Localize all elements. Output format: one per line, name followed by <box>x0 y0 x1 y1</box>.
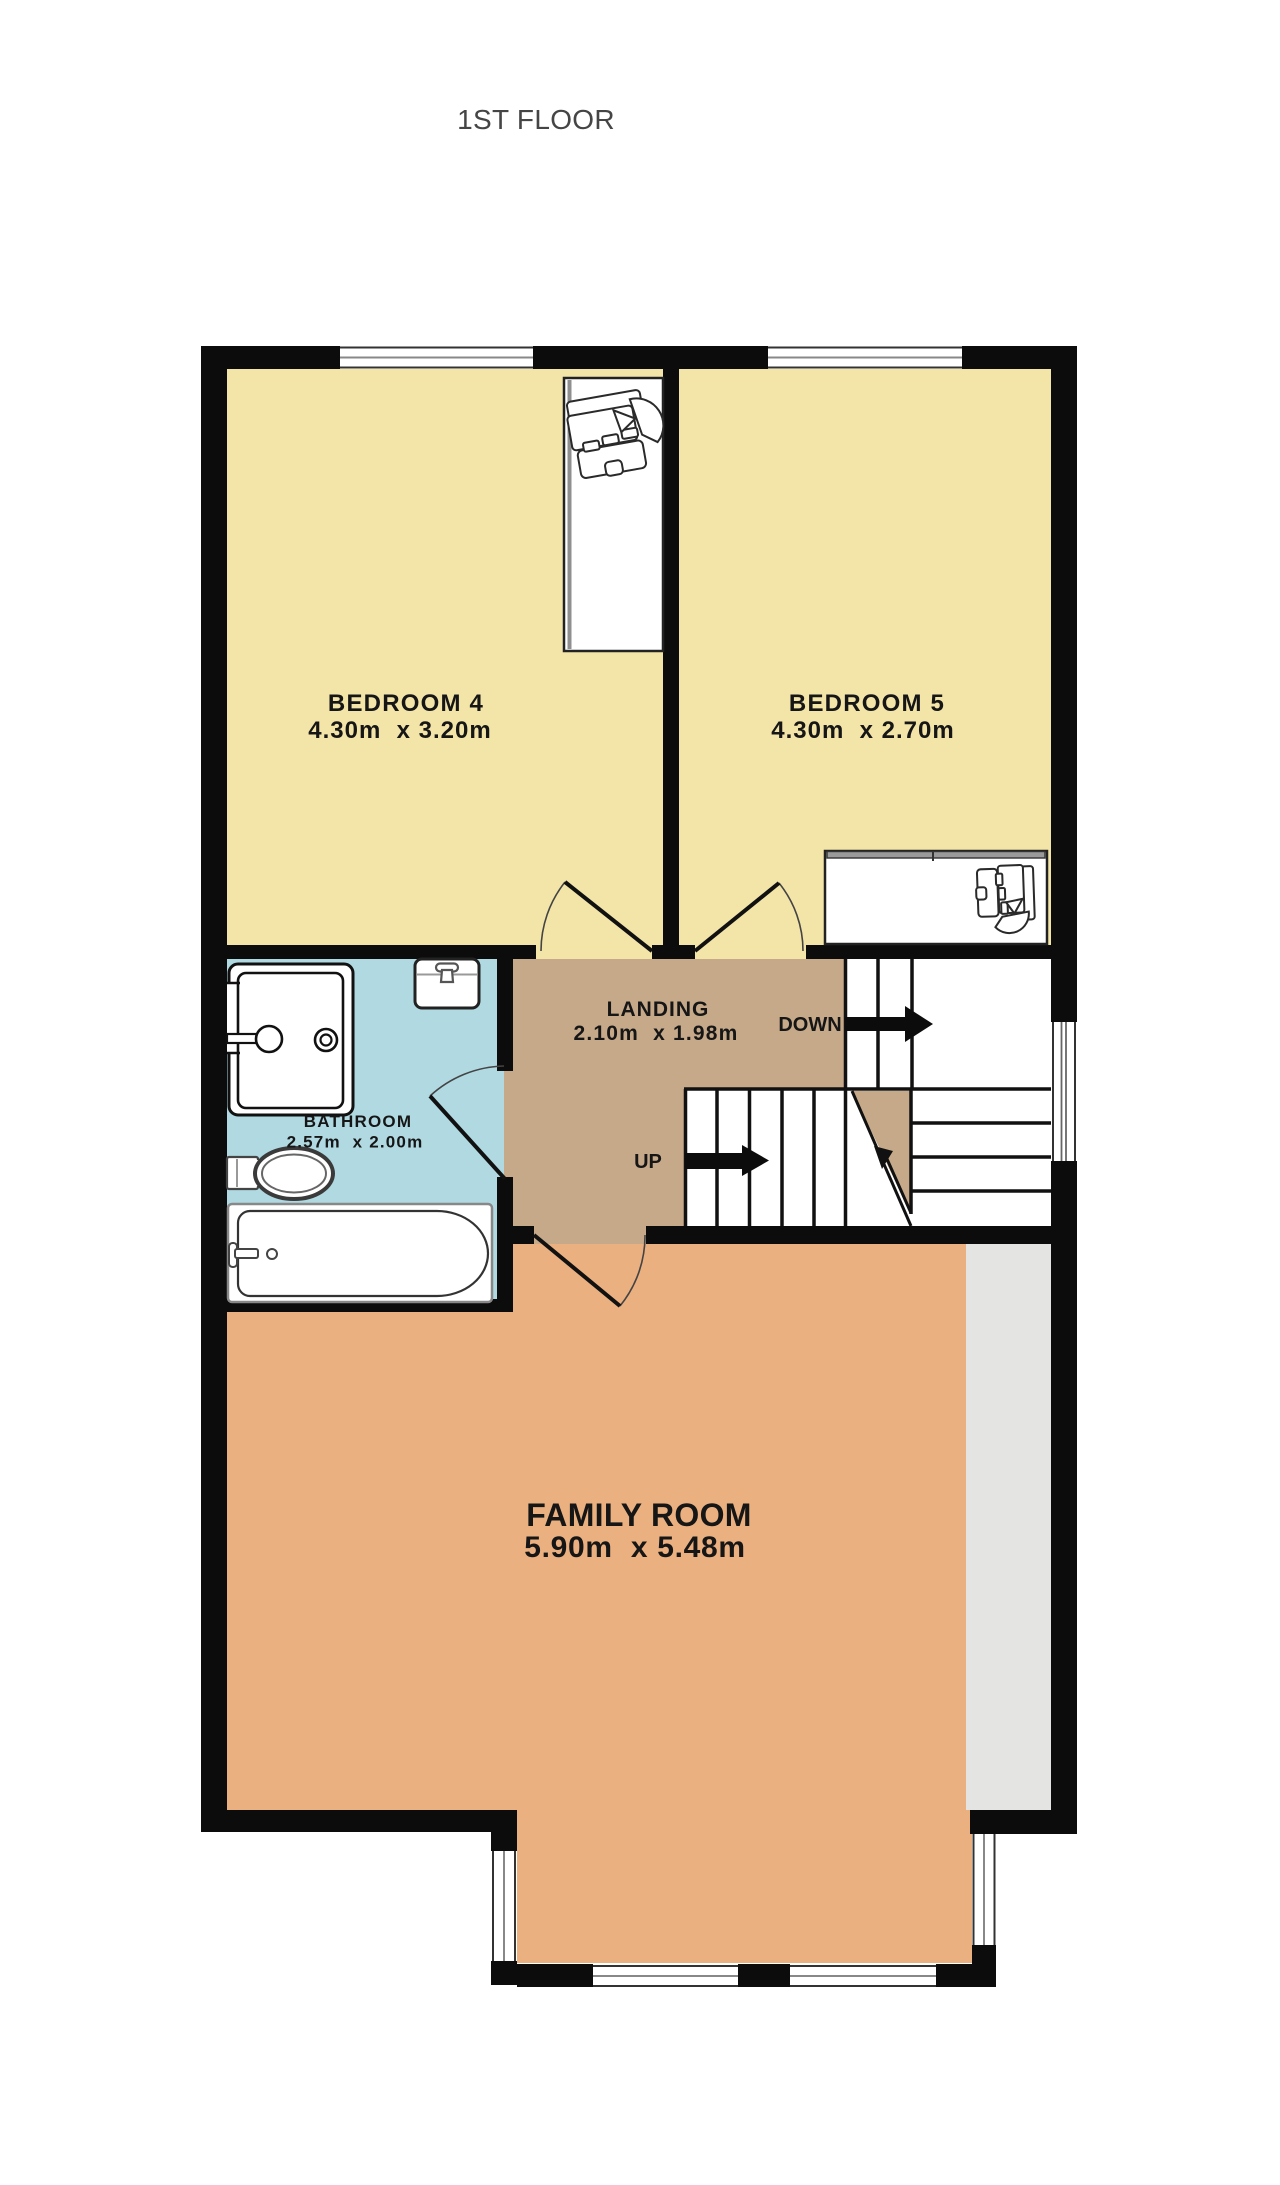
svg-text:LANDING: LANDING <box>607 998 710 1021</box>
svg-text:UP: UP <box>634 1151 662 1173</box>
svg-text:BATHROOM: BATHROOM <box>304 1112 412 1131</box>
svg-text:FAMILY ROOM: FAMILY ROOM <box>526 1497 752 1533</box>
svg-text:1ST FLOOR: 1ST FLOOR <box>457 104 615 135</box>
svg-text:DOWN: DOWN <box>778 1014 841 1036</box>
svg-text:BEDROOM 5: BEDROOM 5 <box>789 690 945 717</box>
svg-text:2.10m x 1.98m: 2.10m x 1.98m <box>573 1022 738 1045</box>
svg-text:4.30m x 2.70m: 4.30m x 2.70m <box>771 717 954 744</box>
svg-text:2.57m x 2.00m: 2.57m x 2.00m <box>287 1133 424 1152</box>
svg-text:4.30m x 3.20m: 4.30m x 3.20m <box>308 717 491 744</box>
svg-text:BEDROOM 4: BEDROOM 4 <box>328 690 484 717</box>
svg-text:5.90m x 5.48m: 5.90m x 5.48m <box>524 1531 746 1564</box>
